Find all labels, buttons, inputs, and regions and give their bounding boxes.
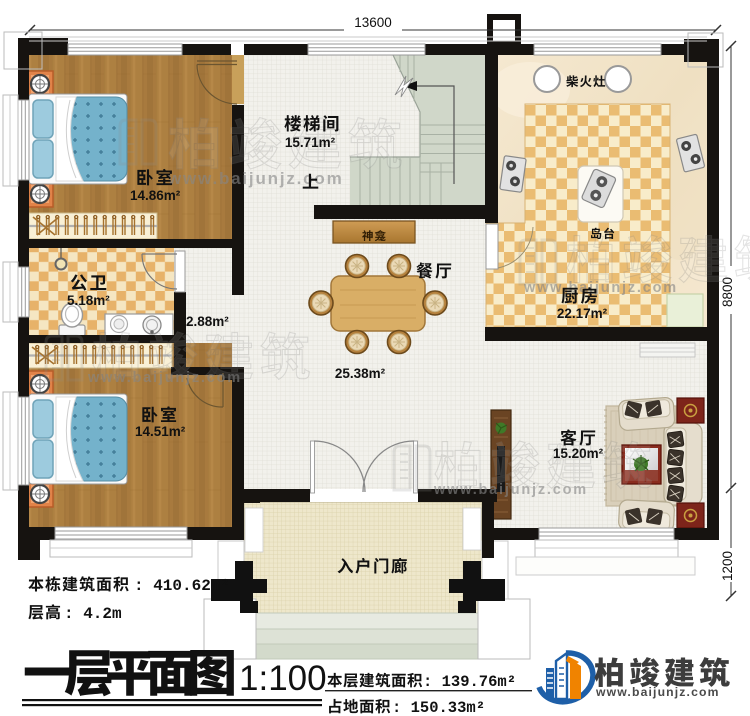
svg-text:14.86m²: 14.86m²	[130, 188, 181, 203]
svg-text:www.baijunjz.com: www.baijunjz.com	[167, 169, 344, 188]
svg-text:13600: 13600	[354, 15, 392, 30]
svg-text:www.baijunjz.com: www.baijunjz.com	[595, 685, 720, 699]
svg-text:www.baijunjz.com: www.baijunjz.com	[87, 370, 242, 386]
svg-text:2.88m²: 2.88m²	[186, 314, 229, 329]
svg-text:www.baijunjz.com: www.baijunjz.com	[523, 280, 678, 296]
svg-text:1200: 1200	[720, 551, 735, 581]
svg-text:15.71m²: 15.71m²	[285, 135, 336, 150]
svg-text:1:100: 1:100	[239, 659, 327, 698]
svg-text:: 4.2m: : 4.2m	[64, 605, 122, 623]
svg-text:: 139.76m²: : 139.76m²	[423, 673, 516, 691]
svg-text:14.51m²: 14.51m²	[135, 424, 186, 439]
svg-text:25.38m²: 25.38m²	[335, 366, 386, 381]
svg-text:22.17m²: 22.17m²	[557, 306, 608, 321]
svg-text:5.18m²: 5.18m²	[67, 293, 110, 308]
svg-text:15.20m²: 15.20m²	[553, 446, 604, 461]
svg-text:www.baijunjz.com: www.baijunjz.com	[433, 482, 588, 498]
svg-text:: 150.33m²: : 150.33m²	[392, 699, 485, 716]
svg-text:: 410.62m²: : 410.62m²	[134, 577, 230, 595]
